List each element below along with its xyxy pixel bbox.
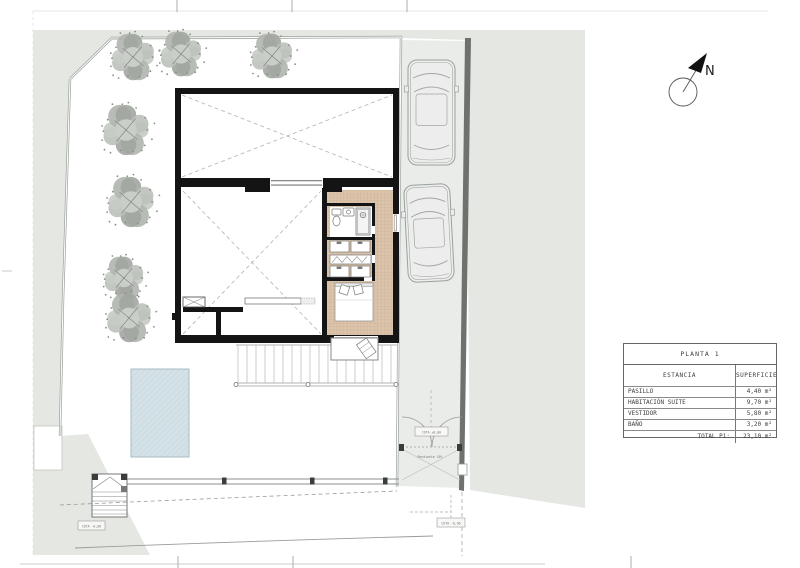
fence [127, 478, 399, 485]
rail-post [394, 383, 398, 387]
table-row: BAÑO3,20 m² [624, 419, 776, 430]
wall-door-gap [458, 464, 467, 475]
rail-post [234, 383, 238, 387]
bathroom-fixtures [332, 208, 370, 235]
boundary-step [34, 426, 62, 470]
toilet-tank [332, 209, 341, 215]
void-cross-upper [182, 95, 392, 177]
column-header-area: SUPERFICIE [735, 365, 776, 386]
room-name: VESTIDOR [624, 409, 735, 419]
void-cross-lower [183, 191, 321, 334]
column-header-room: ESTANCIA [624, 365, 735, 386]
table-total-row: TOTAL P1: 23,10 m² [624, 430, 776, 443]
table-row: VESTIDOR5,80 m² [624, 408, 776, 419]
room-name: PASILLO [624, 387, 735, 397]
tree-symbol [101, 102, 155, 155]
table-row: PASILLO4,40 m² [624, 386, 776, 397]
balcony [331, 338, 378, 360]
table-rows: PASILLO4,40 m²HABITACIÓN SUITE9,70 m²VES… [624, 386, 776, 430]
tree-symbol [106, 174, 160, 227]
table-header: ESTANCIA SUPERFICIE [624, 365, 776, 386]
areas-table: PLANTA 1 ESTANCIA SUPERFICIE PASILLO4,40… [623, 343, 777, 438]
fence-post [310, 478, 315, 485]
gate-level-text: COTA ±0,00 [422, 430, 441, 434]
north-arrow: N [669, 53, 715, 106]
north-label: N [705, 64, 715, 79]
rail-post [306, 383, 310, 387]
tree-symbol [105, 291, 157, 342]
car-top-view [405, 60, 459, 165]
exterior-staircase [92, 474, 127, 517]
tree-symbol [103, 254, 149, 300]
double-bed [335, 283, 373, 321]
stairs-level-tag: COTA -0,60 [78, 521, 105, 530]
table-total-label: TOTAL P1: [624, 431, 735, 443]
table-row: HABITACIÓN SUITE9,70 m² [624, 397, 776, 408]
room-area: 5,80 m² [735, 409, 776, 419]
stairs-level-text: COTA -0,60 [82, 524, 101, 528]
car-top-view [400, 183, 458, 283]
fence-post [383, 478, 388, 485]
ground-level-tag: COTA -0,90 [437, 518, 465, 527]
table-total-value: 23,10 m² [735, 431, 776, 443]
ground-level-text: COTA -0,90 [441, 521, 460, 525]
table-title: PLANTA 1 [624, 344, 776, 365]
stair-shaft [183, 297, 315, 307]
house [172, 88, 399, 360]
pool [131, 369, 189, 457]
toilet-bowl [333, 216, 340, 226]
room-name: BAÑO [624, 420, 735, 430]
site-plan: COTA -0,60 COTA ±0,00 Pendiente 16% COTA… [0, 0, 800, 568]
room-name: HABITACIÓN SUITE [624, 398, 735, 408]
room-area: 9,70 m² [735, 398, 776, 408]
drawing-sheet: COTA -0,60 COTA ±0,00 Pendiente 16% COTA… [0, 0, 800, 568]
room-area: 3,20 m² [735, 420, 776, 430]
room-area: 4,40 m² [735, 387, 776, 397]
fence-post [222, 478, 227, 485]
ramp-note-text: Pendiente 16% [418, 455, 443, 459]
